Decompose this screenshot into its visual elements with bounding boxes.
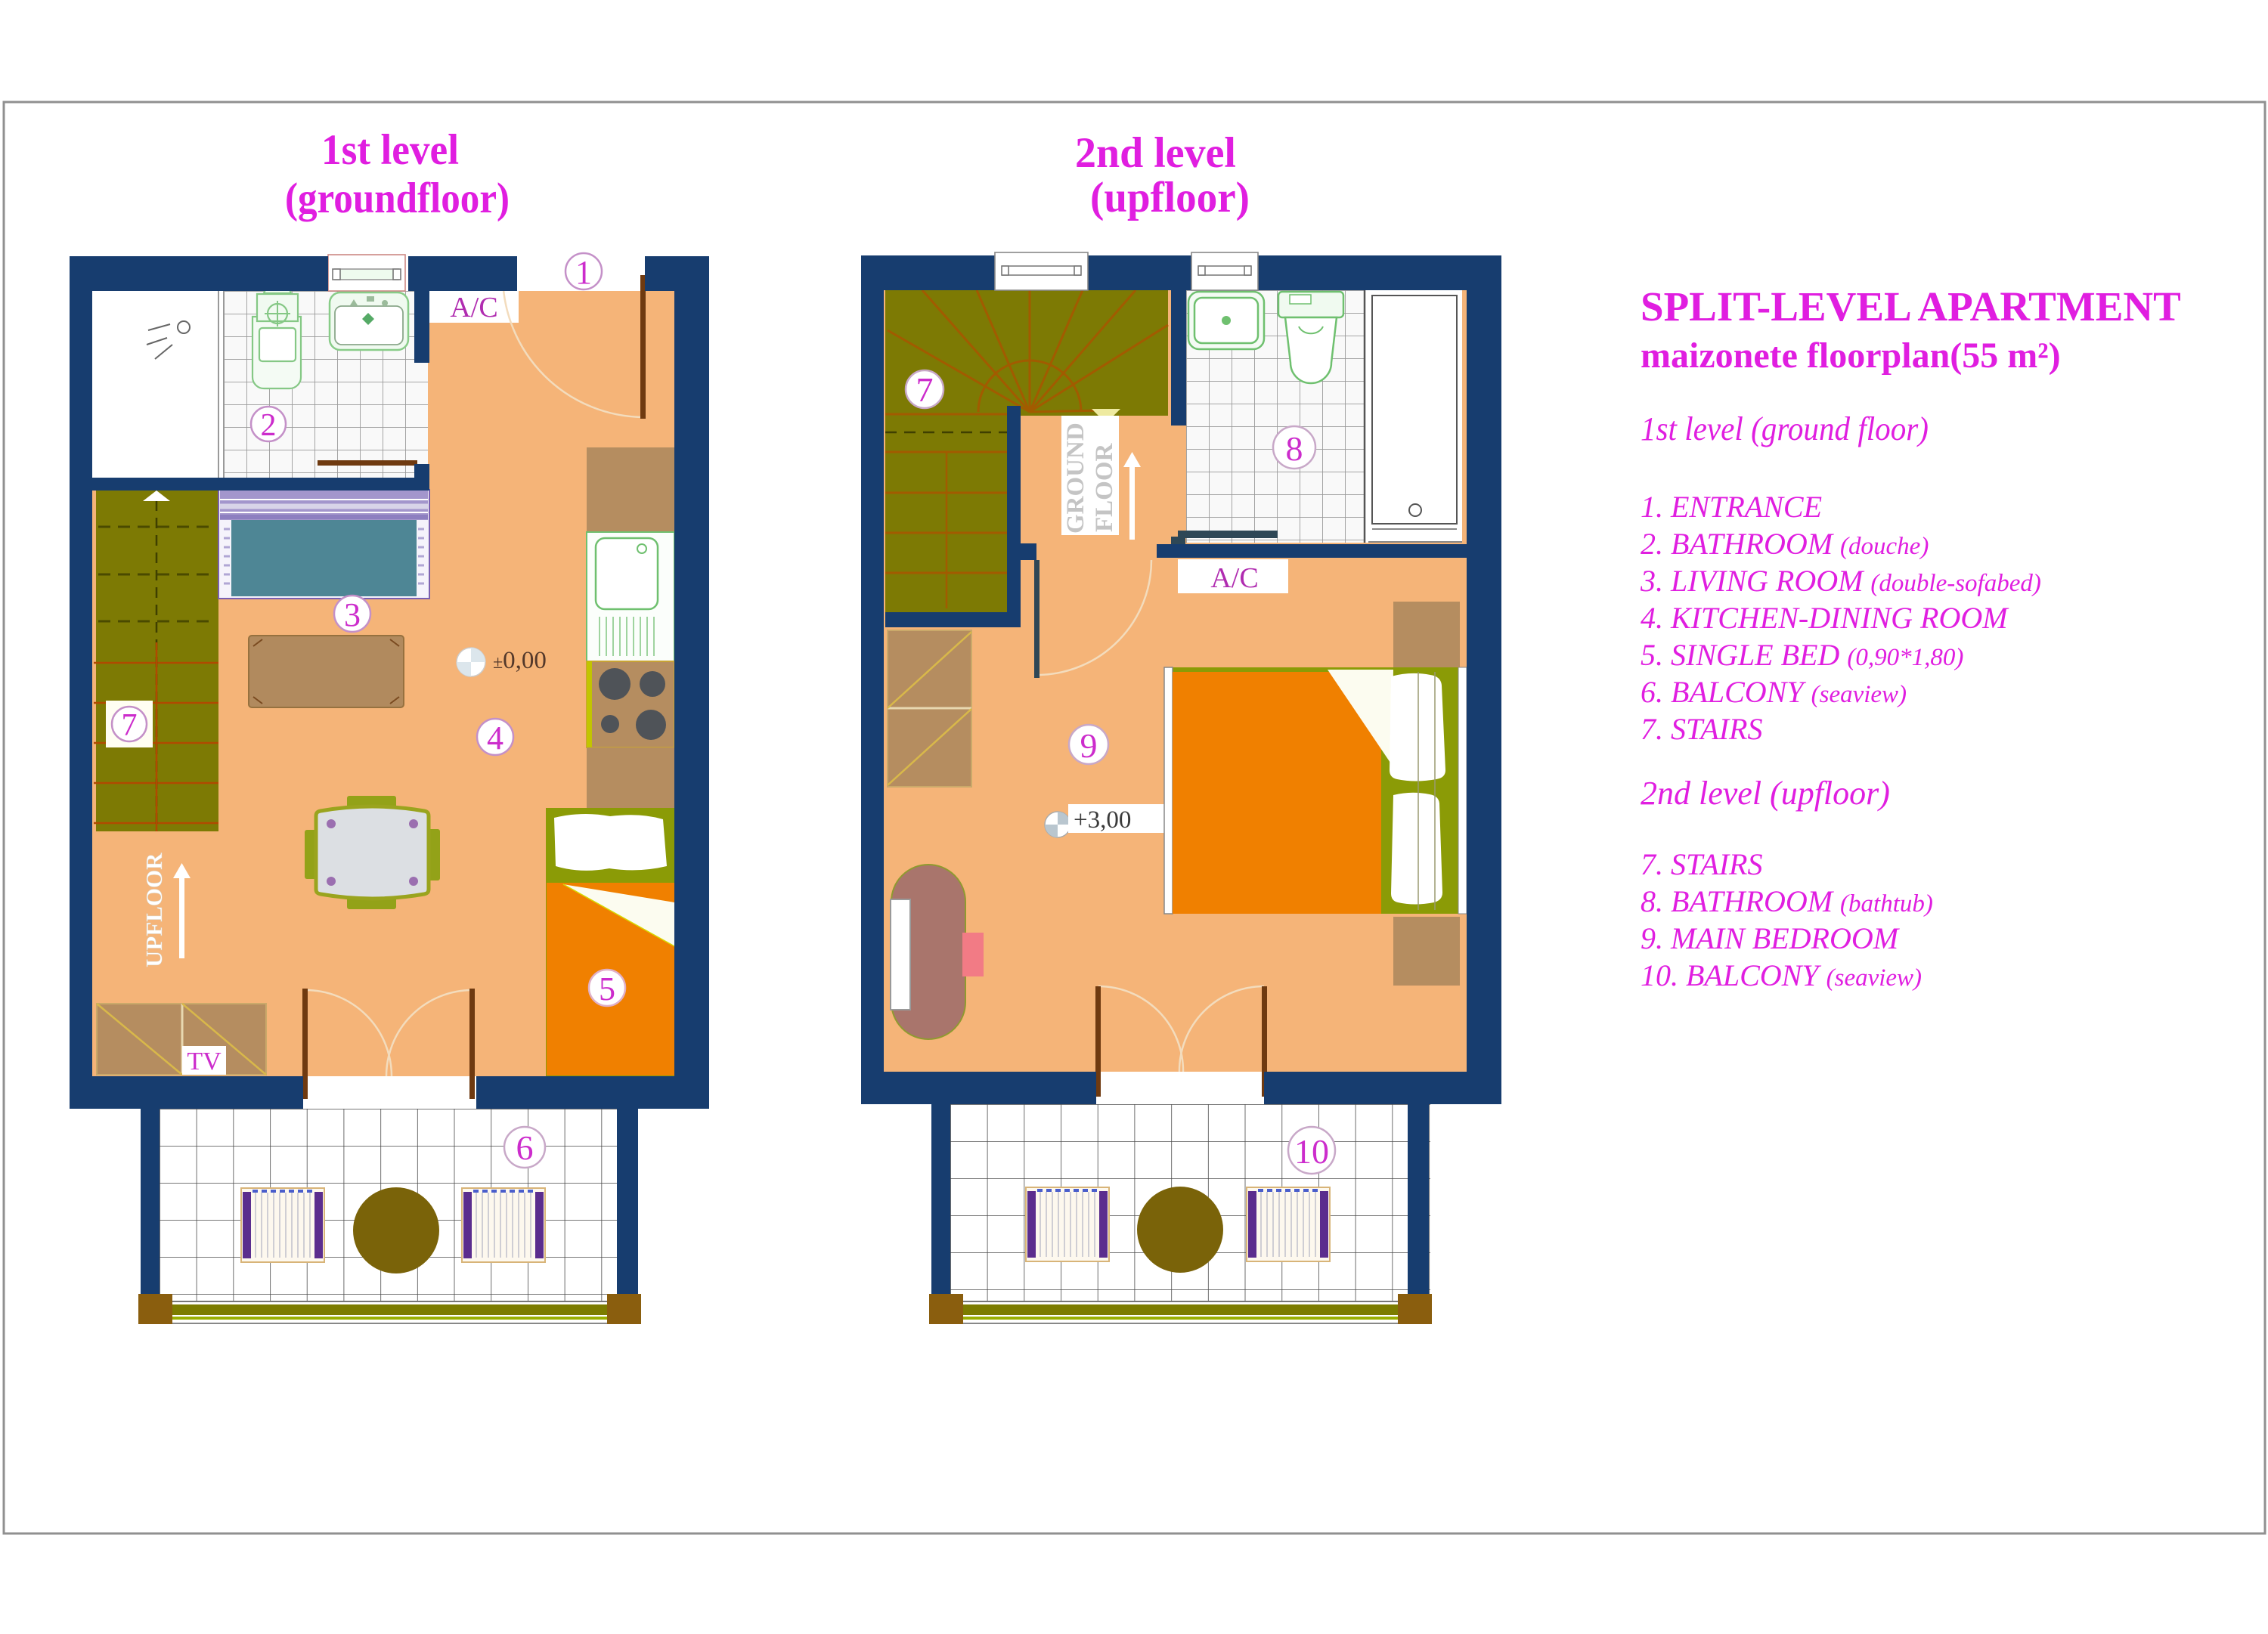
svg-text:7. STAIRS: 7. STAIRS (1641, 712, 1762, 746)
svg-text:10: 10 (1294, 1132, 1329, 1171)
svg-text:9. MAIN BEDROOM: 9. MAIN BEDROOM (1641, 921, 1901, 955)
svg-text:(upfloor): (upfloor) (1090, 174, 1250, 221)
svg-text:7. STAIRS: 7. STAIRS (1641, 847, 1762, 881)
svg-text:2: 2 (261, 408, 277, 443)
svg-text:+3,00: +3,00 (1074, 806, 1131, 834)
svg-text:TV: TV (187, 1048, 222, 1075)
svg-text:maizonete floorplan(55 m²): maizonete floorplan(55 m²) (1641, 336, 2061, 376)
svg-text:FLOOR: FLOOR (1091, 442, 1118, 532)
svg-text:4: 4 (487, 720, 503, 757)
svg-text:SPLIT-LEVEL APARTMENT: SPLIT-LEVEL APARTMENT (1641, 283, 2181, 330)
svg-text:3: 3 (344, 596, 361, 633)
svg-text:1. ENTRANCE: 1. ENTRANCE (1641, 490, 1822, 524)
svg-text:7: 7 (916, 370, 934, 409)
svg-text:8: 8 (1286, 429, 1303, 468)
svg-text:(groundfloor): (groundfloor) (285, 175, 510, 222)
svg-text:GROUND: GROUND (1062, 422, 1089, 534)
svg-text:9: 9 (1080, 726, 1098, 765)
svg-text:A/C: A/C (1210, 562, 1258, 594)
svg-text:4. KITCHEN-DINING ROOM: 4. KITCHEN-DINING ROOM (1641, 601, 2009, 635)
svg-text:6: 6 (516, 1128, 534, 1167)
svg-text:1st level: 1st level (321, 126, 459, 174)
svg-text:2nd level (upfloor): 2nd level (upfloor) (1641, 775, 1890, 812)
svg-text:UPFLOOR: UPFLOOR (141, 853, 167, 967)
svg-text:1st level (ground floor): 1st level (ground floor) (1641, 410, 1929, 447)
svg-text:2nd level: 2nd level (1075, 129, 1236, 177)
svg-text:A/C: A/C (450, 292, 497, 323)
svg-text:7: 7 (122, 708, 138, 743)
svg-text:1: 1 (575, 254, 592, 291)
svg-text:5: 5 (599, 970, 615, 1007)
